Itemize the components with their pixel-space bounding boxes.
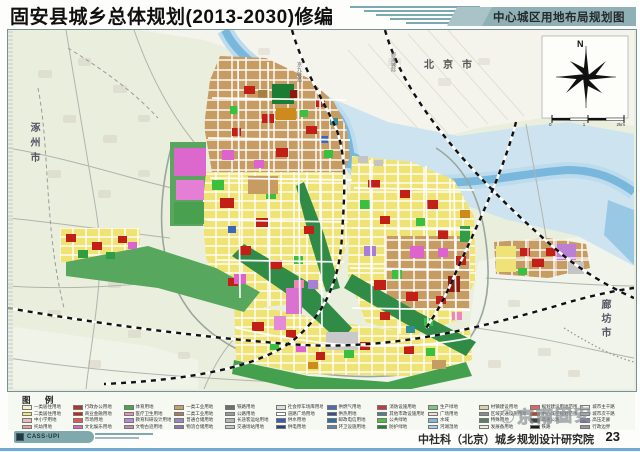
legend-item: 交通场站用地 <box>225 424 272 431</box>
compass-box <box>542 36 628 123</box>
institute-logo-banner: CASS-UPI <box>14 431 94 443</box>
bottom-rule <box>0 448 640 451</box>
label-beijing: 北京市 <box>424 56 481 71</box>
label-langfang: 廊坊市 <box>597 299 612 341</box>
legend-item: 物流仓储用地 <box>174 424 221 431</box>
legend-item: 河湖湿地 <box>428 424 475 431</box>
watermark: 京南固安 <box>500 400 594 428</box>
page-binding-strip <box>8 30 13 389</box>
map-sheet-title-badge: 中心城区用地布局规划图 <box>482 7 636 26</box>
legend-item: 文化娱乐用地 <box>73 424 120 431</box>
footer-line-decoration <box>95 433 153 435</box>
watermark-seal-icon <box>500 409 514 423</box>
institute-name: 中社科（北京）城乡规划设计研究院 <box>418 431 594 447</box>
plan-document-page: 固安县城乡总体规划(2013-2030)修编 中心城区用地布局规划图 <box>0 0 640 452</box>
map-canvas <box>7 29 637 392</box>
compass-north-label: N <box>577 39 584 49</box>
institute-logo-text: CASS-UPI <box>27 434 60 440</box>
legend-item: 文物古迹用地 <box>124 424 171 431</box>
page-title: 固安县城乡总体规划(2013-2030)修编 <box>10 2 334 29</box>
page-number: 23 <box>606 429 620 444</box>
label-railway-jingjiu: 京九铁路 <box>296 62 303 82</box>
legend-item: 环卫设施用地 <box>327 424 374 431</box>
footer-line-decoration <box>95 437 139 439</box>
label-railway-langzhuo: 廊涿城际 <box>390 52 397 72</box>
scale-bar-ticks: 012km <box>549 122 625 127</box>
legend-item: 防护绿地 <box>377 424 424 431</box>
label-zhuozhou: 涿州市 <box>26 122 41 167</box>
watermark-text: 京南固安 <box>517 400 594 428</box>
institute-logo-icon <box>16 433 24 441</box>
legend-item: 供电用地 <box>276 424 323 431</box>
legend-item: 托幼用地 <box>22 424 69 431</box>
